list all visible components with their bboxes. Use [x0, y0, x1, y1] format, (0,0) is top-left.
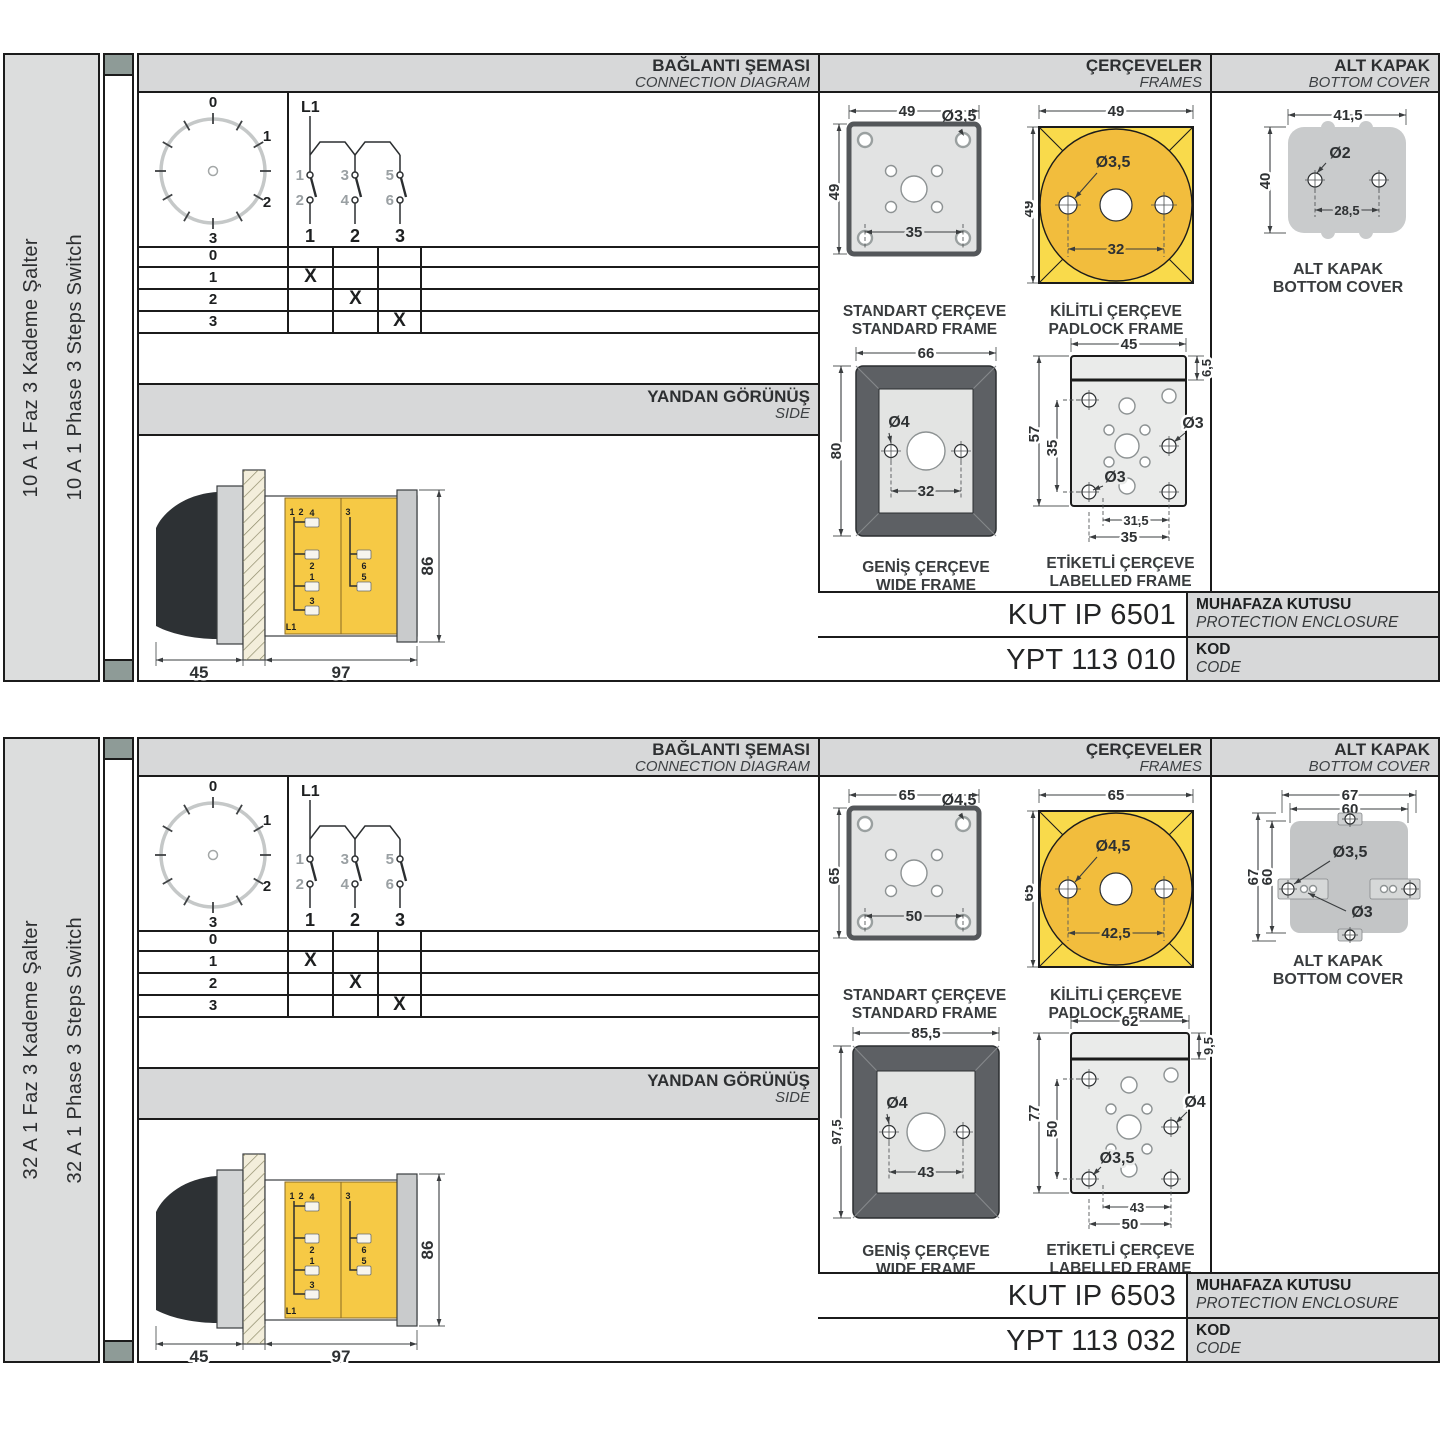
rear-cap	[397, 490, 417, 642]
side-label-tr-text: 10 A 1 Faz 3 Kademe Şalter	[20, 238, 43, 497]
svg-text:Ø2: Ø2	[1329, 145, 1350, 162]
mark-cell	[377, 268, 422, 288]
mark-cell	[332, 268, 377, 288]
svg-text:80: 80	[831, 443, 845, 460]
svg-text:Ø3: Ø3	[1182, 415, 1203, 432]
svg-text:4: 4	[341, 876, 350, 893]
labelled-frame-drawing: 62 9,5 77 50 Ø4	[1023, 1011, 1218, 1236]
svg-text:28,5: 28,5	[1334, 203, 1359, 218]
cover-caption: ALT KAPAK BOTTOM COVER	[1242, 953, 1434, 989]
table-row: 1X	[139, 268, 818, 290]
row-label: 0	[139, 246, 287, 266]
enclosure-code: KUT IP 6503	[818, 1274, 1186, 1317]
svg-text:Ø3: Ø3	[1104, 469, 1125, 486]
enclosure-row: KUT IP 6503 MUHAFAZA KUTUSU PROTECTION E…	[818, 1272, 1438, 1317]
side-label-tr-text: 32 A 1 Faz 3 Kademe Şalter	[20, 920, 43, 1179]
svg-text:6: 6	[361, 561, 366, 571]
contact-1: 1	[296, 167, 304, 184]
empty-cell	[422, 312, 818, 332]
table-row: 2X	[139, 974, 818, 996]
svg-text:L1: L1	[286, 1306, 297, 1316]
svg-text:86: 86	[418, 1241, 437, 1260]
enclosure-code: KUT IP 6501	[818, 593, 1186, 636]
table-row: 2X	[139, 290, 818, 312]
svg-text:57: 57	[1026, 426, 1043, 443]
svg-text:Ø3,5: Ø3,5	[1333, 844, 1368, 861]
svg-text:Ø3: Ø3	[1351, 904, 1372, 921]
svg-text:L1: L1	[286, 622, 297, 632]
svg-text:45: 45	[1121, 336, 1138, 353]
bottom-cover-drawing: 67 60 Ø3,5 Ø3 6	[1242, 787, 1434, 947]
product-section-32a: 32 A 1 Faz 3 Kademe Şalter 32 A 1 Phase …	[0, 737, 1445, 1363]
svg-text:41,5: 41,5	[1333, 107, 1362, 124]
mark-cell	[287, 290, 332, 310]
dial-pos-2: 2	[263, 194, 271, 211]
dial-center	[209, 851, 218, 860]
enclosure-label: MUHAFAZA KUTUSU PROTECTION ENCLOSURE	[1186, 593, 1438, 636]
svg-text:1: 1	[289, 507, 294, 517]
mark-cell	[332, 246, 377, 266]
front-plate	[217, 486, 243, 644]
side-view-drawing: 1 2 4 2 1 3 L1 3 6 5 45 97 86	[139, 436, 619, 682]
padlock-frame-block: 49 49 Ø3,5 32 KİLİTLİ ÇERÇEVE PADLOCK	[1025, 99, 1207, 339]
side-label-en-text: 10 A 1 Phase 3 Steps Switch	[64, 234, 87, 501]
spine-cap-bottom	[105, 1340, 132, 1361]
wide-frame-drawing: 85,5 97,5 Ø4 43	[831, 1021, 1021, 1237]
svg-text:Ø3,5: Ø3,5	[1096, 154, 1131, 171]
code-row: YPT 113 010 KOD CODE	[818, 636, 1438, 680]
handle-grip	[156, 1176, 217, 1323]
side-view-drawing: 1 2 4 2 1 3 L1 3 6 5 45 97 86	[139, 1120, 619, 1366]
svg-text:2: 2	[298, 507, 303, 517]
svg-text:66: 66	[918, 345, 935, 362]
header-connection: BAĞLANTI ŞEMASI CONNECTION DIAGRAM	[139, 739, 818, 775]
contact-diagram: L1 1 2 3 4 5 6 1 2 3	[287, 777, 818, 930]
svg-text:Ø4: Ø4	[886, 1095, 907, 1112]
pole-1: 1	[305, 226, 315, 246]
dim-body: 97	[332, 663, 351, 682]
svg-text:97: 97	[332, 1347, 351, 1366]
catalog-page: 10 A 1 Faz 3 Kademe Şalter 10 A 1 Phase …	[0, 0, 1445, 1445]
spine-cap-bottom	[105, 659, 132, 680]
wide-frame-block: 66 80 Ø4 32 GENİŞ ÇERÇEVE WIDE FRAME	[831, 341, 1021, 595]
labelled-frame-block: 62 9,5 77 50 Ø4	[1023, 1011, 1218, 1278]
bottom-cover-drawing: 41,5 Ø2 40 28,5	[1242, 105, 1434, 255]
header-frames: ÇERÇEVELER FRAMES	[818, 739, 1210, 775]
side-label-tr: 10 A 1 Faz 3 Kademe Şalter	[9, 55, 53, 680]
table-row: 3X	[139, 996, 818, 1018]
svg-text:49: 49	[1108, 103, 1125, 120]
rotary-dial-drawing: 0 1 2 3	[139, 93, 287, 246]
padlock-frame-drawing: 65 65 Ø4,5 42,5	[1025, 783, 1207, 981]
phase-label: L1	[301, 783, 320, 800]
header-connection-en: CONNECTION DIAGRAM	[139, 75, 810, 91]
svg-text:Ø4: Ø4	[1184, 1094, 1205, 1111]
svg-text:1: 1	[309, 572, 314, 582]
side-view-title-tr: YANDAN GÖRÜNÜŞ	[139, 387, 810, 406]
header-cover: ALT KAPAK BOTTOM COVER	[1210, 739, 1438, 775]
side-view-header: YANDAN GÖRÜNÜŞ SIDE	[139, 383, 818, 436]
frame-caption: ETİKETLİ ÇERÇEVE LABELLED FRAME	[1023, 555, 1218, 591]
column-headers: BAĞLANTI ŞEMASI CONNECTION DIAGRAM ÇERÇE…	[139, 739, 1438, 777]
contact-6: 6	[386, 192, 394, 209]
header-cover-en: BOTTOM COVER	[1212, 75, 1430, 91]
side-view-title-en: SIDE	[139, 406, 810, 422]
svg-text:42,5: 42,5	[1101, 925, 1130, 942]
svg-text:6: 6	[386, 876, 394, 893]
pole-2: 2	[350, 226, 360, 246]
side-label-en: 32 A 1 Phase 3 Steps Switch	[53, 739, 97, 1361]
side-label-en: 10 A 1 Phase 3 Steps Switch	[53, 55, 97, 680]
header-connection: BAĞLANTI ŞEMASI CONNECTION DIAGRAM	[139, 55, 818, 91]
mark-cell: X	[332, 290, 377, 310]
labelled-frame-drawing: 45 6,5 57 35 Ø3	[1023, 334, 1218, 549]
svg-text:2: 2	[263, 878, 271, 895]
datasheet-box: BAĞLANTI ŞEMASI CONNECTION DIAGRAM ÇERÇE…	[137, 53, 1440, 682]
svg-text:5: 5	[361, 1256, 366, 1266]
svg-text:1: 1	[263, 812, 271, 829]
svg-text:65: 65	[1108, 787, 1125, 804]
frame-caption: GENİŞ ÇERÇEVE WIDE FRAME	[831, 559, 1021, 595]
svg-text:50: 50	[1044, 1121, 1061, 1138]
header-frames: ÇERÇEVELER FRAMES	[818, 55, 1210, 91]
svg-text:97,5: 97,5	[831, 1119, 844, 1144]
side-view-header: YANDAN GÖRÜNÜŞ SIDE	[139, 1067, 818, 1120]
svg-text:5: 5	[386, 851, 394, 868]
row-label: 2	[139, 290, 287, 310]
svg-text:3: 3	[345, 1191, 350, 1201]
spine-cap-top	[105, 739, 132, 760]
svg-text:77: 77	[1026, 1105, 1043, 1122]
header-cover-tr: ALT KAPAK	[1212, 56, 1430, 75]
table-row: 3X	[139, 312, 818, 334]
product-side-label-box: 10 A 1 Faz 3 Kademe Şalter 10 A 1 Phase …	[3, 53, 100, 682]
dial-center	[209, 167, 218, 176]
svg-text:Ø3,5: Ø3,5	[1100, 1150, 1135, 1167]
svg-text:4: 4	[309, 1192, 314, 1202]
svg-text:3: 3	[309, 596, 314, 606]
svg-text:43: 43	[1130, 1200, 1144, 1215]
svg-text:5: 5	[361, 572, 366, 582]
svg-text:0: 0	[209, 778, 217, 795]
svg-text:3: 3	[345, 507, 350, 517]
padlock-frame-block: 65 65 Ø4,5 42,5 KİLİTLİ ÇERÇEVE PADLOC	[1025, 783, 1207, 1023]
svg-text:35: 35	[906, 224, 923, 241]
svg-text:40: 40	[1257, 173, 1274, 190]
header-frames-en: FRAMES	[820, 75, 1202, 91]
empty-cell	[422, 268, 818, 288]
empty-cell	[422, 290, 818, 310]
svg-text:50: 50	[1122, 1216, 1139, 1233]
datasheet-box: BAĞLANTI ŞEMASI CONNECTION DIAGRAM ÇERÇE…	[137, 737, 1440, 1363]
rear-cap	[397, 1174, 417, 1326]
side-label-en-text: 32 A 1 Phase 3 Steps Switch	[64, 917, 87, 1184]
svg-text:6,5: 6,5	[1199, 359, 1214, 377]
svg-text:2: 2	[296, 876, 304, 893]
svg-text:43: 43	[918, 1164, 935, 1181]
standard-frame-drawing: 49 Ø3,5 49 35	[827, 99, 1022, 297]
column-headers: BAĞLANTI ŞEMASI CONNECTION DIAGRAM ÇERÇE…	[139, 55, 1438, 93]
svg-text:3: 3	[209, 914, 217, 930]
dim-height: 86	[418, 557, 437, 576]
row-label: 3	[139, 312, 287, 332]
handle-grip	[156, 492, 217, 639]
svg-text:65: 65	[899, 787, 916, 804]
svg-text:31,5: 31,5	[1123, 513, 1148, 528]
svg-text:35: 35	[1044, 440, 1061, 457]
svg-text:2: 2	[350, 910, 360, 930]
standard-frame-block: 65 Ø4,5 65 50 STANDART ÇERÇEVE STANDARD …	[827, 783, 1022, 1023]
phase-label: L1	[301, 99, 320, 116]
svg-text:3: 3	[395, 910, 405, 930]
contact-5: 5	[386, 167, 394, 184]
contact-4: 4	[341, 192, 350, 209]
product-side-label-box: 32 A 1 Faz 3 Kademe Şalter 32 A 1 Phase …	[3, 737, 100, 1363]
svg-text:62: 62	[1122, 1013, 1139, 1030]
header-connection-tr: BAĞLANTI ŞEMASI	[139, 56, 810, 75]
svg-text:2: 2	[309, 1245, 314, 1255]
svg-text:35: 35	[1121, 529, 1138, 546]
svg-text:1: 1	[309, 1256, 314, 1266]
dial-pos-3: 3	[209, 230, 217, 246]
standard-frame-block: 49 Ø3,5 49 35 STANDART ÇERÇEVE STANDARD …	[827, 99, 1022, 339]
spine-cap-top	[105, 55, 132, 76]
contact-2: 2	[296, 192, 304, 209]
dim-front: 45	[190, 663, 209, 682]
code-label: KOD CODE	[1186, 638, 1438, 680]
contact-3: 3	[341, 167, 349, 184]
table-row: 0	[139, 930, 818, 952]
svg-text:32: 32	[918, 483, 935, 500]
mark-cell	[287, 246, 332, 266]
frame-caption: STANDART ÇERÇEVE STANDARD FRAME	[827, 303, 1022, 339]
svg-text:50: 50	[906, 908, 923, 925]
mark-cell: X	[287, 268, 332, 288]
labelled-frame-block: 45 6,5 57 35 Ø3	[1023, 334, 1218, 591]
svg-text:49: 49	[899, 103, 916, 120]
empty-cell	[422, 246, 818, 266]
position-table: 0 1X 2X 3X	[139, 930, 818, 1018]
mark-cell	[332, 312, 377, 332]
svg-text:6: 6	[361, 1245, 366, 1255]
bottom-cover-block: 67 60 Ø3,5 Ø3 6	[1242, 787, 1434, 989]
svg-text:49: 49	[827, 184, 843, 201]
frame-caption: STANDART ÇERÇEVE STANDARD FRAME	[827, 987, 1022, 1023]
dial-pos-0: 0	[209, 94, 217, 111]
spine-bar	[103, 737, 134, 1363]
mark-cell	[377, 290, 422, 310]
svg-text:9,5: 9,5	[1201, 1037, 1216, 1055]
table-row: 0	[139, 246, 818, 268]
mark-cell: X	[377, 312, 422, 332]
contact-diagram: L1 1 2 3 4 5 6 1 2 3	[287, 93, 818, 246]
wide-frame-drawing: 66 80 Ø4 32	[831, 341, 1021, 553]
product-code: YPT 113 032	[818, 1319, 1186, 1361]
standard-frame-drawing: 65 Ø4,5 65 50	[827, 783, 1022, 981]
svg-text:49: 49	[1025, 201, 1037, 218]
header-frames-tr: ÇERÇEVELER	[820, 56, 1202, 75]
svg-text:60: 60	[1259, 869, 1276, 886]
front-plate	[217, 1170, 243, 1328]
svg-text:1: 1	[296, 851, 304, 868]
rotary-dial-drawing: 0 1 2 3	[139, 777, 287, 930]
cover-caption: ALT KAPAK BOTTOM COVER	[1242, 261, 1434, 297]
mark-cell	[377, 246, 422, 266]
svg-text:32: 32	[1108, 241, 1125, 258]
side-label-tr: 32 A 1 Faz 3 Kademe Şalter	[9, 739, 53, 1361]
header-cover: ALT KAPAK BOTTOM COVER	[1210, 55, 1438, 91]
product-section-10a: 10 A 1 Faz 3 Kademe Şalter 10 A 1 Phase …	[0, 53, 1445, 682]
svg-text:85,5: 85,5	[911, 1025, 940, 1042]
svg-text:Ø4,5: Ø4,5	[1096, 838, 1131, 855]
svg-text:2: 2	[309, 561, 314, 571]
product-code: YPT 113 010	[818, 638, 1186, 680]
row-label: 1	[139, 268, 287, 288]
svg-text:45: 45	[190, 1347, 209, 1366]
svg-text:3: 3	[309, 1280, 314, 1290]
svg-text:3: 3	[341, 851, 349, 868]
svg-text:2: 2	[298, 1191, 303, 1201]
enclosure-row: KUT IP 6501 MUHAFAZA KUTUSU PROTECTION E…	[818, 591, 1438, 636]
position-table: 0 1X 2X 3X	[139, 246, 818, 334]
enclosure-label: MUHAFAZA KUTUSU PROTECTION ENCLOSURE	[1186, 1274, 1438, 1317]
mark-cell	[287, 312, 332, 332]
svg-text:Ø4: Ø4	[888, 414, 909, 431]
wide-frame-block: 85,5 97,5 Ø4 43 GENİŞ ÇERÇEVE WIDE FRA	[831, 1021, 1021, 1279]
padlock-frame-drawing: 49 49 Ø3,5 32	[1025, 99, 1207, 297]
svg-text:65: 65	[1025, 885, 1037, 902]
code-label: KOD CODE	[1186, 1319, 1438, 1361]
pole-3: 3	[395, 226, 405, 246]
spine-bar	[103, 53, 134, 682]
svg-text:1: 1	[305, 910, 315, 930]
code-row: YPT 113 032 KOD CODE	[818, 1317, 1438, 1361]
table-row: 1X	[139, 952, 818, 974]
svg-text:65: 65	[827, 868, 843, 885]
svg-text:1: 1	[289, 1191, 294, 1201]
dial-pos-1: 1	[263, 128, 271, 145]
svg-text:4: 4	[309, 508, 314, 518]
bottom-cover-block: 41,5 Ø2 40 28,5 ALT KAPAK BOTTOM COVER	[1242, 105, 1434, 297]
